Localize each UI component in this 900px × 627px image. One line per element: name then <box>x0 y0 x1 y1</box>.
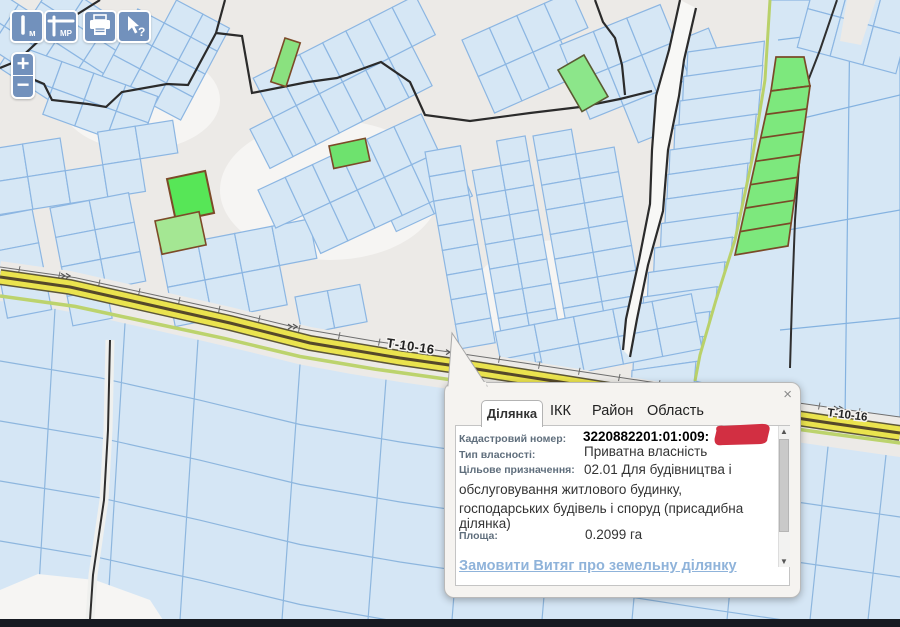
svg-text:м: м <box>29 28 36 38</box>
svg-text:МР: МР <box>60 29 73 38</box>
svg-text:?: ? <box>138 25 145 39</box>
